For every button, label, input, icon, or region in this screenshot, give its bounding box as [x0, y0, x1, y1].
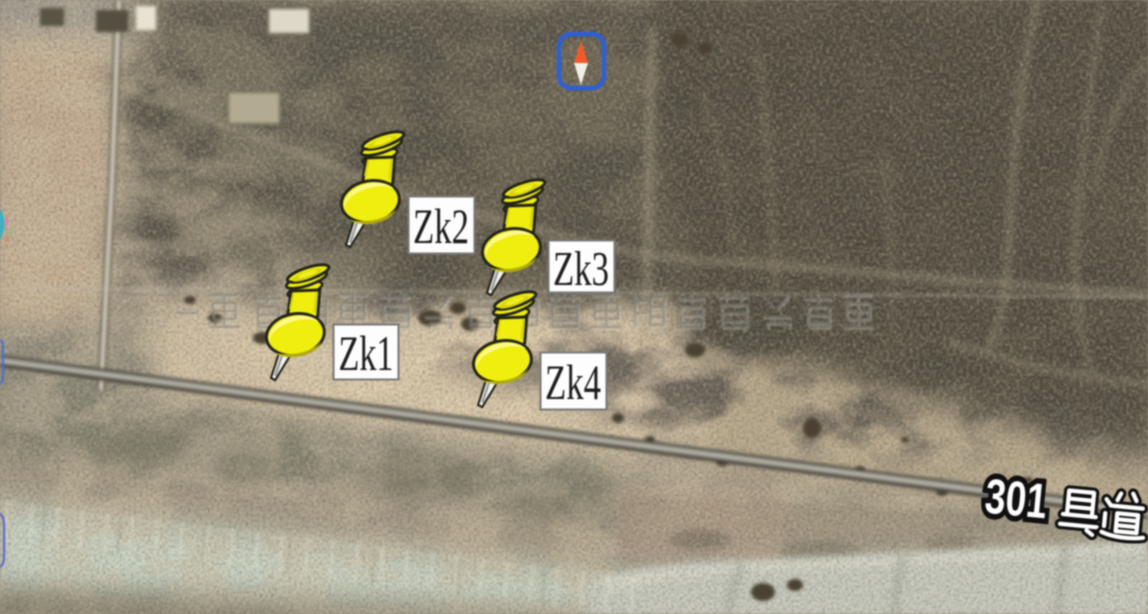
svg-text:Zk2: Zk2: [413, 198, 469, 254]
svg-text:Zk4: Zk4: [545, 354, 601, 410]
svg-text:Zk1: Zk1: [339, 325, 394, 381]
svg-text:Zk3: Zk3: [553, 241, 609, 296]
svg-text:301: 301: [983, 470, 1050, 530]
